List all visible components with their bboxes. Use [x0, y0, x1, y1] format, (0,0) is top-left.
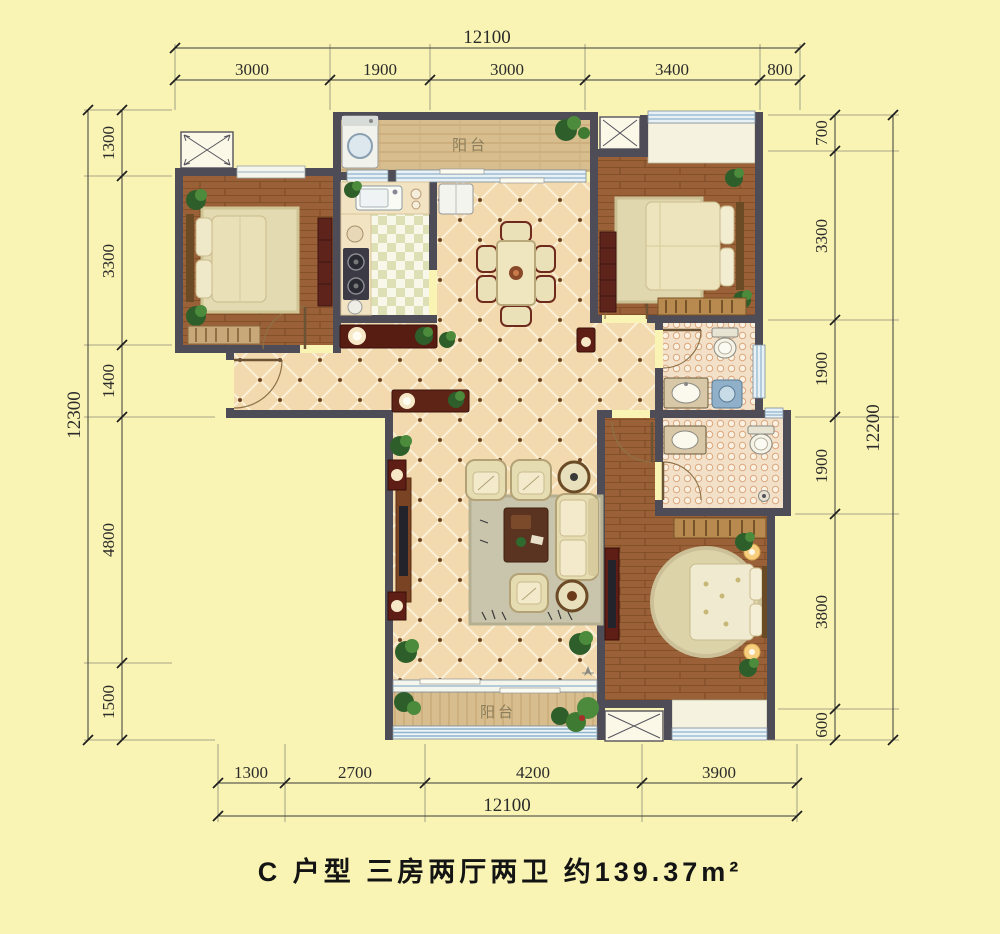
- dim-right-segment-5: 600: [812, 712, 831, 738]
- end-table: [388, 592, 406, 620]
- window-kitchen: [347, 170, 388, 182]
- dining-chair: [535, 246, 555, 272]
- dim-top-segment-1: 1900: [363, 60, 397, 79]
- dining-chair: [501, 306, 531, 326]
- hall-cabinet: [577, 328, 595, 352]
- dim-bottom-segment-1: 2700: [338, 763, 372, 782]
- armchair: [466, 460, 506, 500]
- dim-top-segment-2: 3000: [490, 60, 524, 79]
- coffee-table: [504, 508, 548, 562]
- tv-cabinet: [396, 478, 411, 602]
- dining-chair: [477, 246, 497, 272]
- dish: [411, 189, 421, 199]
- round-side-table: [557, 581, 587, 611]
- round-side-table: [559, 462, 589, 492]
- floor-drain-icon: [759, 491, 770, 502]
- floor-plan-page: 阳台 阳台: [0, 0, 1000, 934]
- bookshelf: [600, 232, 616, 312]
- lamp-icon: [744, 644, 760, 660]
- armchair: [510, 574, 548, 612]
- dim-left-segment-2: 1400: [99, 364, 118, 398]
- dim-right-segment-2: 1900: [812, 352, 831, 386]
- window-bay-topright: [648, 111, 755, 123]
- sideboard: [340, 325, 437, 348]
- dim-left-total: 12300: [64, 391, 85, 439]
- floor-plan-drawing: 阳台 阳台: [0, 0, 1000, 934]
- pot: [348, 300, 362, 314]
- wardrobe: [188, 326, 260, 344]
- window-bay-master: [672, 728, 767, 740]
- dining-chair: [535, 276, 555, 302]
- dim-right-segment-1: 3300: [812, 219, 831, 253]
- balcony-railing: [393, 726, 597, 739]
- dim-top-total: 12100: [463, 27, 511, 48]
- armchair: [511, 460, 551, 500]
- kitchen-sink: [356, 186, 402, 210]
- end-table: [388, 460, 406, 490]
- dim-top-segment-3: 3400: [655, 60, 689, 79]
- window-bathroom2: [765, 408, 783, 418]
- dim-left-segment-3: 4800: [99, 523, 118, 557]
- dim-right-segment-4: 3800: [812, 595, 831, 629]
- dining-chair: [501, 222, 531, 242]
- dish: [412, 201, 420, 209]
- dining-chair: [477, 276, 497, 302]
- dim-left-segment-0: 1300: [99, 126, 118, 160]
- dim-bottom-segment-0: 1300: [234, 763, 268, 782]
- ac-platform-icon-topright: [600, 117, 640, 149]
- dresser: [318, 218, 332, 306]
- dim-right-segment-3: 1900: [812, 449, 831, 483]
- dresser: [658, 298, 746, 315]
- dim-left-segment-1: 3300: [99, 244, 118, 278]
- toilet-icon: [712, 328, 738, 358]
- dim-right-segment-0: 700: [812, 120, 831, 146]
- console-table: [392, 390, 469, 412]
- toilet-icon: [748, 426, 774, 454]
- ac-platform-icon-topleft: [181, 132, 233, 168]
- window-bedroom-topleft: [237, 166, 305, 178]
- dim-bottom-segment-2: 4200: [516, 763, 550, 782]
- stove-icon: [343, 248, 369, 300]
- bowl: [347, 226, 363, 242]
- fridge-icon: [439, 184, 473, 214]
- sofa: [556, 494, 598, 580]
- window-bathroom1: [753, 345, 765, 398]
- dim-bottom-segment-3: 3900: [702, 763, 736, 782]
- shower-unit: [712, 380, 742, 408]
- dim-top-segment-0: 3000: [235, 60, 269, 79]
- tv-console: [605, 548, 619, 640]
- balcony-bottom-label: 阳台: [480, 704, 516, 721]
- bay-window-sill-master: [672, 700, 767, 730]
- dim-right-total: 12200: [863, 404, 884, 452]
- washing-machine-icon: [342, 116, 378, 168]
- sink-vanity: [664, 426, 706, 454]
- dim-top-segment-4: 800: [767, 60, 793, 79]
- window-living-balcony: [393, 679, 597, 693]
- dim-left-segment-4: 1500: [99, 685, 118, 719]
- dim-bottom-total: 12100: [483, 795, 531, 816]
- sink-vanity: [664, 378, 708, 408]
- bay-window-sill-topright: [648, 123, 755, 163]
- window-dining-balcony: [396, 169, 586, 183]
- ac-platform-icon-bottomright: [605, 711, 663, 741]
- plan-title: C 户型 三房两厅两卫 约139.37m²: [0, 850, 1000, 889]
- balcony-top-label: 阳台: [452, 137, 488, 154]
